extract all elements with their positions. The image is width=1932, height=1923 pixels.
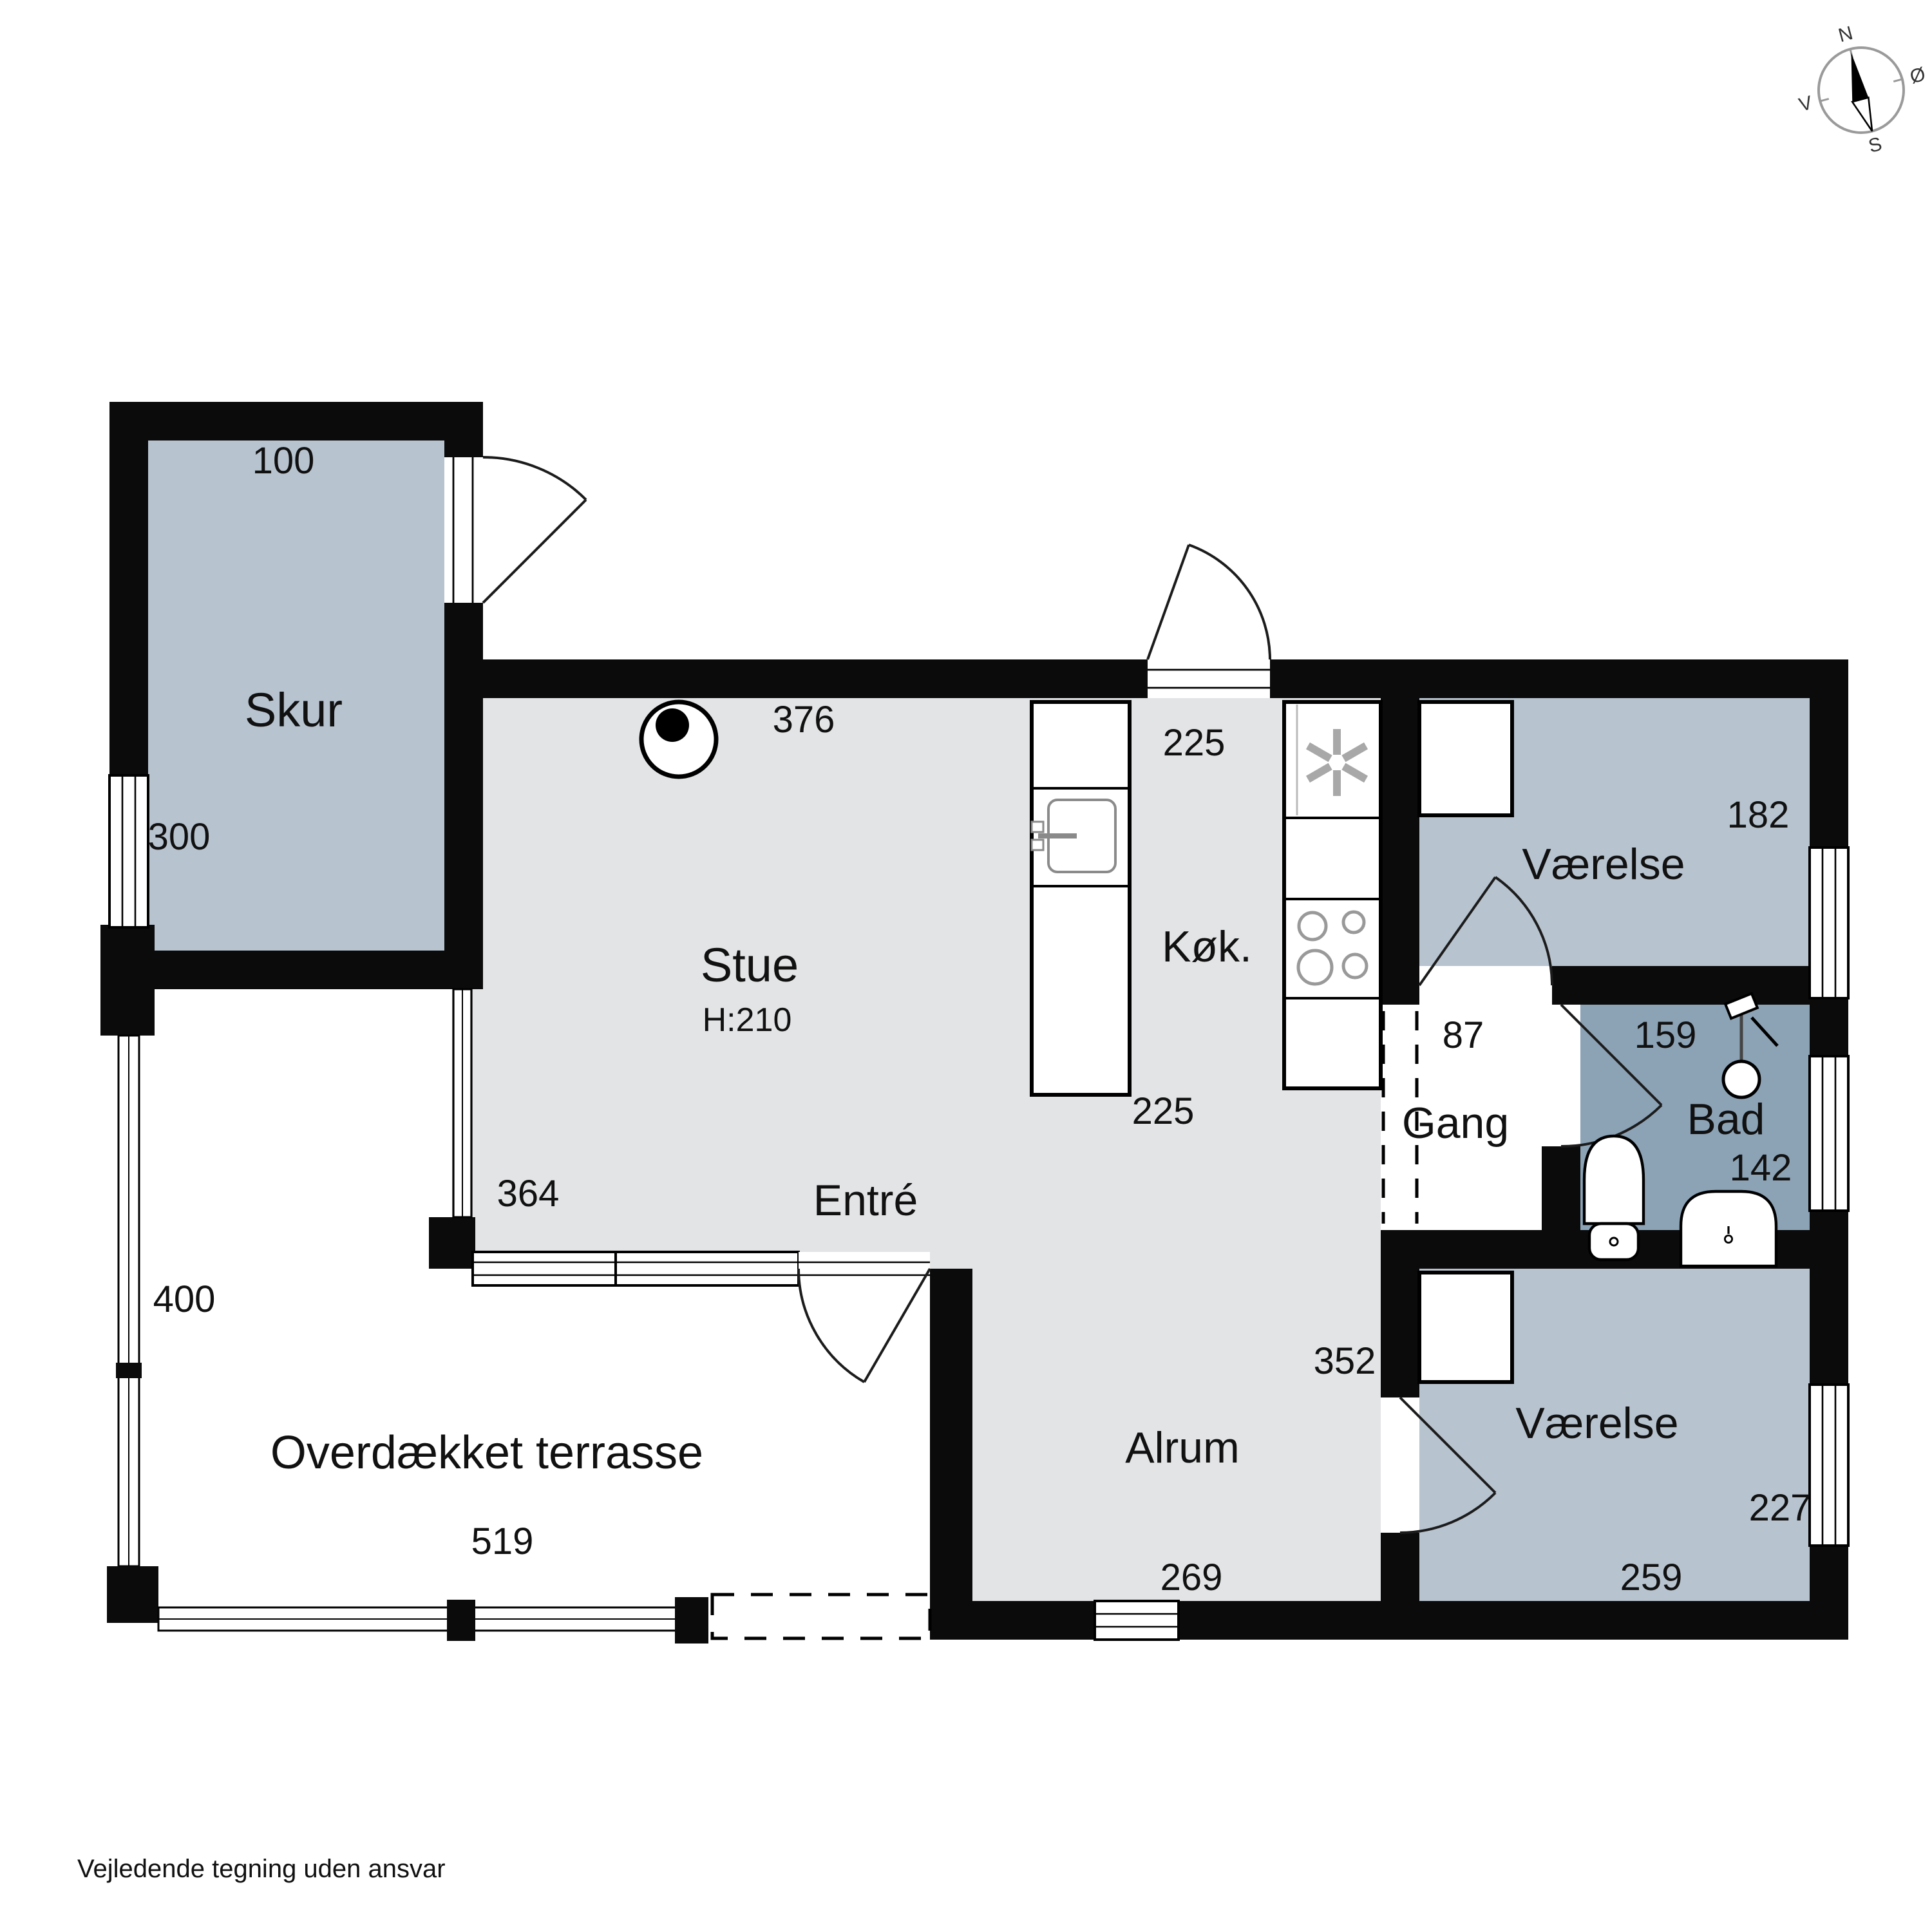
floorplan: 100 Skur 300 376 Stue H:210 364 Entré 22… — [0, 0, 1932, 1923]
disclaimer-text: Vejledende tegning uden ansvar — [77, 1855, 446, 1885]
bad-door-opening — [1542, 1005, 1580, 1146]
kok-label: Køk. — [1162, 923, 1252, 973]
compass-needle-north — [1840, 52, 1868, 102]
entre-door — [799, 1269, 930, 1382]
stue-label: Stue — [701, 939, 799, 993]
wall-north-left — [444, 659, 1148, 698]
closet-vaerelse-ne — [1419, 702, 1512, 815]
bad-dim-top: 159 — [1634, 1016, 1697, 1058]
gang-label: Gang — [1402, 1099, 1509, 1150]
terrasse-label: Overdækket terrasse — [270, 1426, 703, 1480]
stue-dim-left: 364 — [497, 1174, 560, 1217]
bad-label: Bad — [1687, 1095, 1765, 1146]
skur-door — [483, 457, 586, 603]
railing-south — [158, 1597, 708, 1644]
entre-door-threshold — [799, 1252, 930, 1285]
wall-alrum-west — [930, 1269, 972, 1640]
vaerelse-se-door-opening — [1381, 1397, 1419, 1533]
compass-needle-south — [1852, 97, 1877, 134]
kok-dim-bottom: 225 — [1132, 1092, 1195, 1134]
wall-vaerelse-se-left-upper — [1381, 1269, 1419, 1397]
vaerelse-ne-door-opening — [1419, 966, 1552, 1005]
wall-skur-bottom — [109, 951, 483, 989]
kok-exterior-door — [1148, 545, 1270, 659]
wall-vaerelse-ne-left — [1381, 698, 1419, 1005]
skur-dim-left: 300 — [148, 817, 211, 860]
ceiling-light-icon — [641, 702, 716, 777]
wall-gang-bad-divider — [1542, 1146, 1580, 1230]
railing-west — [116, 1036, 142, 1566]
skur-door-threshold — [444, 457, 483, 603]
kok-door-threshold — [1148, 659, 1270, 698]
entre-label: Entré — [813, 1177, 918, 1227]
terrasse-dim-left: 400 — [153, 1280, 216, 1322]
alrum-label: Alrum — [1125, 1424, 1240, 1474]
entry-step-dashed — [712, 1595, 930, 1638]
window-vaerelse-ne-east — [1810, 848, 1848, 998]
wall-skur-right-upper — [444, 402, 483, 457]
stue-floor — [471, 698, 1381, 1256]
stue-dim-top: 376 — [773, 700, 835, 743]
wall-entre-post — [429, 1217, 475, 1269]
skur-label: Skur — [245, 684, 343, 738]
wall-skur-top — [109, 402, 483, 440]
window-stue-west-band — [453, 989, 471, 1217]
closet-vaerelse-se — [1419, 1273, 1512, 1382]
wall-skur-left-upper — [109, 402, 148, 775]
skur-dim-top: 100 — [252, 441, 315, 484]
vaerelse-se-dim-right: 227 — [1749, 1488, 1812, 1531]
bath-sink-icon — [1681, 1191, 1776, 1266]
toilet-icon — [1584, 1136, 1643, 1260]
window-vaerelse-se-east — [1810, 1385, 1848, 1546]
vaerelse-ne-dim: 182 — [1727, 795, 1790, 838]
floorplan-page: 100 Skur 300 376 Stue H:210 364 Entré 22… — [0, 0, 1932, 1923]
wall-gang-bad-top — [1552, 966, 1848, 1005]
vaerelse-se-label: Værelse — [1515, 1399, 1678, 1450]
bad-dim-right: 142 — [1730, 1148, 1792, 1191]
railing-corner-post — [107, 1566, 158, 1623]
floorplan-drawing — [0, 0, 1932, 1923]
wall-north-right — [1270, 659, 1848, 698]
window-stue-south-band — [473, 1252, 799, 1285]
stue-ceiling-height: H:210 — [703, 1000, 792, 1040]
wall-vaerelse-se-left-lower — [1381, 1533, 1419, 1640]
kitchen-counter — [1284, 702, 1381, 1088]
window-skur-west — [109, 775, 148, 927]
alrum-dim-bottom: 269 — [1160, 1558, 1223, 1600]
window-alrum-south — [1095, 1601, 1179, 1640]
kok-dim-top: 225 — [1163, 723, 1226, 766]
kitchen-island — [1032, 702, 1130, 1095]
vaerelse-se-dim-door: 352 — [1314, 1341, 1376, 1384]
compass-icon — [1809, 38, 1913, 142]
terrasse-dim-bottom: 519 — [471, 1522, 534, 1564]
gang-dim: 87 — [1443, 1016, 1484, 1058]
vaerelse-se-dim-bottom: 259 — [1620, 1558, 1683, 1600]
window-bad-east — [1810, 1056, 1848, 1211]
vaerelse-ne-label: Værelse — [1522, 840, 1685, 891]
